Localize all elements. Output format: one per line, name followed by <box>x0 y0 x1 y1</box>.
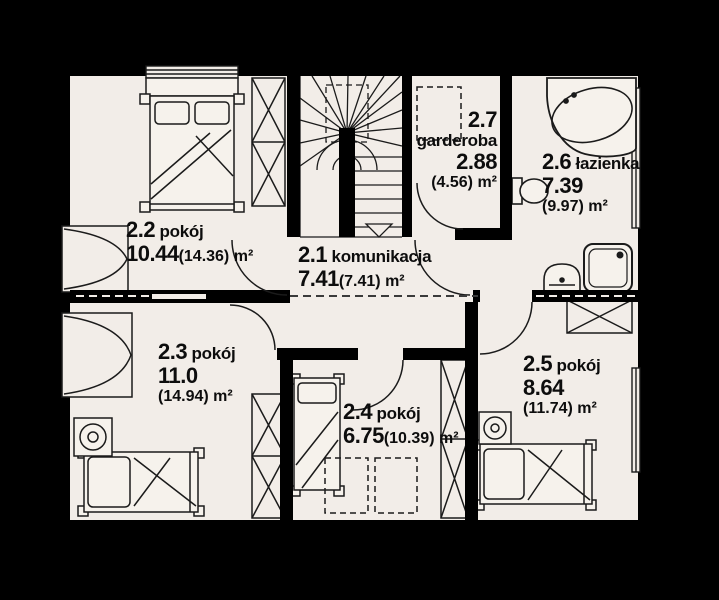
floor-plan: 2.2 pokój 10.44(14.36) m² 2.1 komunikacj… <box>0 0 719 600</box>
single-bed-room24 <box>290 374 344 496</box>
nightstand-room23 <box>74 418 112 456</box>
double-bed <box>140 78 244 212</box>
room-label-2-7: 2.7 garderoba 2.88 (4.56) m² <box>400 108 497 191</box>
nightstand-room25 <box>479 412 511 444</box>
single-bed-room25 <box>474 440 596 510</box>
room-label-2-1: 2.1 komunikacja 7.41(7.41) m² <box>298 243 431 291</box>
single-bed-room23 <box>78 448 204 516</box>
floor-plan-drawing <box>0 0 719 600</box>
shower-cabin <box>584 244 632 292</box>
room-label-2-5: 2.5 pokój 8.64 (11.74) m² <box>523 352 600 417</box>
room-label-2-3: 2.3 pokój 11.0 (14.94) m² <box>158 340 235 405</box>
sink <box>544 264 580 292</box>
casement-window-room22 <box>62 226 128 292</box>
room-label-2-4: 2.4 pokój 6.75(10.39) m² <box>343 400 459 448</box>
room-label-2-6: 2.6 łazienka 7.39 (9.97) m² <box>542 150 639 215</box>
wall-opening-marker <box>152 294 206 299</box>
room-label-2-2: 2.2 pokój 10.44(14.36) m² <box>126 218 253 266</box>
casement-window-room23 <box>62 313 132 397</box>
